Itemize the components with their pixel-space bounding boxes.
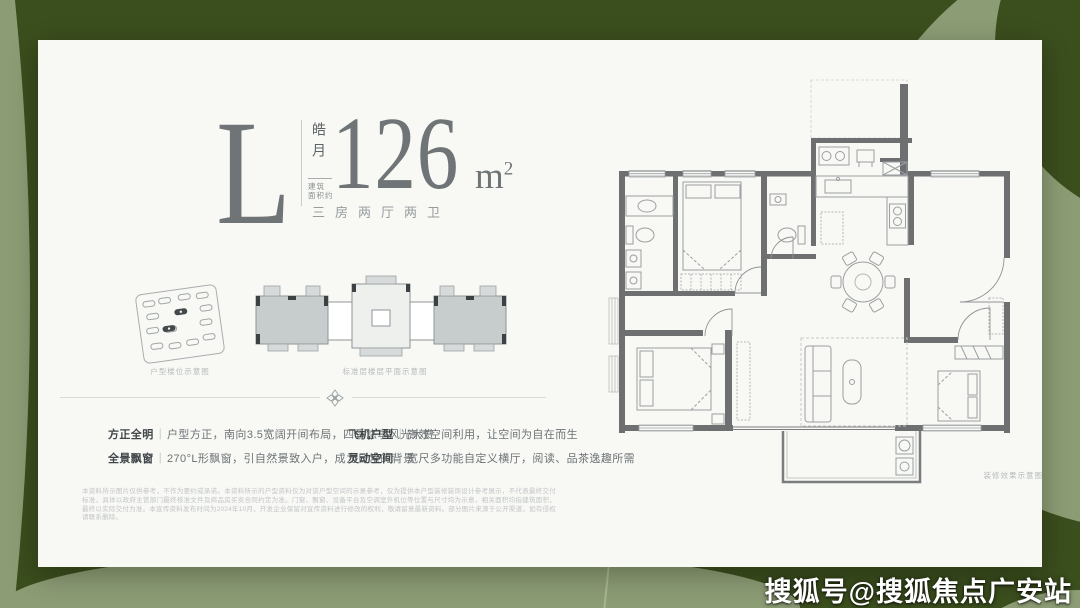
bathroom-1 — [626, 196, 673, 289]
door-arcs — [705, 237, 1004, 340]
area-number: 126 — [332, 98, 459, 210]
feature-label: 全景飘窗 — [108, 453, 154, 465]
floorplan-card: L 皓月 建筑 面积约 126 m2 三房两厅两卫 — [38, 40, 1042, 567]
toilet-icon — [626, 226, 654, 244]
sink-icon — [638, 200, 656, 212]
rooms-spec: 三房两厅两卫 — [312, 202, 450, 221]
stove-icon — [890, 204, 906, 228]
washer-dryer-icon — [819, 147, 849, 165]
wardrobe-icon — [955, 346, 1003, 359]
tv-cabinet-icon — [737, 342, 750, 420]
sofa-icon — [805, 346, 831, 422]
bay-window-icon — [609, 298, 618, 392]
area-label-rule — [308, 178, 332, 179]
master-bedroom — [637, 344, 724, 424]
vertical-divider — [301, 120, 302, 206]
area-unit: m2 — [475, 155, 513, 198]
nightstand-icon — [712, 414, 724, 424]
unit-name: 皓月 — [309, 122, 329, 164]
floor-plate-caption: 标准层楼层平面示意图 — [290, 366, 480, 377]
area-unit-base: m — [475, 156, 504, 197]
floor-plate-diagram — [248, 272, 514, 364]
floor-plan-drawing — [595, 60, 1035, 492]
area-label: 建筑 面积约 — [308, 182, 334, 200]
bedroom-3 — [938, 346, 1003, 421]
feature-item: 飞机户型｜高效空间利用，让空间为自在而生 — [348, 426, 578, 442]
highlighted-buildings — [160, 308, 190, 333]
feature-label: 方正全明 — [108, 429, 154, 441]
bed-icon — [637, 348, 711, 410]
site-plan-caption: 户型楼位示意图 — [130, 366, 230, 377]
shoe-cabinet-icon — [989, 298, 1003, 334]
island-cabinet-icon — [821, 212, 843, 244]
watermark-text: 搜狐号@搜狐焦点广安站 — [765, 570, 1072, 608]
feature-desc: 高效空间利用，让空间为自在而生 — [407, 429, 578, 441]
living-room — [737, 338, 907, 426]
cabinet-icon — [681, 274, 741, 290]
counter-icon — [816, 176, 908, 197]
sink-icon — [770, 194, 786, 205]
balcony-washer-icon — [896, 437, 913, 475]
kitchen-sink-icon — [825, 180, 851, 193]
area-value: 126 m2 — [332, 98, 513, 210]
vanity-counter-icon — [626, 196, 673, 216]
feature-separator: ｜ — [155, 429, 166, 441]
windows — [609, 171, 981, 432]
divider-line-left — [60, 397, 320, 398]
nightstand-icon — [712, 344, 724, 354]
site-plan-diagram — [133, 283, 226, 366]
divider-line-right — [352, 397, 546, 398]
toilet-icon — [778, 226, 805, 244]
feature-separator: ｜ — [395, 453, 406, 465]
disclaimer-text: 本资料所示图片仅供参考，不作为要约或承诺。本资料所示的户型资料仅为对该户型空间的… — [82, 488, 556, 523]
kitchen — [816, 176, 908, 245]
feature-label: 灵动空间 — [348, 453, 394, 465]
feature-separator: ｜ — [155, 453, 166, 465]
area-label-line2: 面积约 — [308, 191, 334, 200]
area-unit-sup: 2 — [504, 159, 514, 180]
floor-plan-caption: 装修效果示意图 — [943, 470, 1043, 481]
dining-table-icon — [831, 251, 895, 312]
feature-separator: ｜ — [395, 429, 406, 441]
clover-ornament-icon — [325, 388, 345, 408]
leaf-shape-left — [0, 0, 30, 608]
bed-icon — [938, 371, 980, 421]
unit-type-letter: L — [216, 98, 291, 248]
bed-icon — [683, 182, 741, 270]
coffee-table-icon — [843, 360, 861, 404]
balcony — [733, 427, 920, 482]
bathroom-2 — [770, 194, 805, 244]
area-label-line1: 建筑 — [308, 182, 325, 191]
side-table-icon — [857, 150, 874, 167]
feature-label: 飞机户型 — [348, 429, 394, 441]
bedroom-2 — [681, 182, 741, 290]
dining-area — [831, 251, 1003, 334]
roof-outline — [811, 80, 907, 138]
feature-item: 灵动空间｜宽尺多功能自定义横厅，阅读、品茶逸趣所需 — [348, 450, 635, 466]
poster-background: L 皓月 建筑 面积约 126 m2 三房两厅两卫 — [0, 0, 1080, 608]
walls — [619, 84, 1010, 433]
